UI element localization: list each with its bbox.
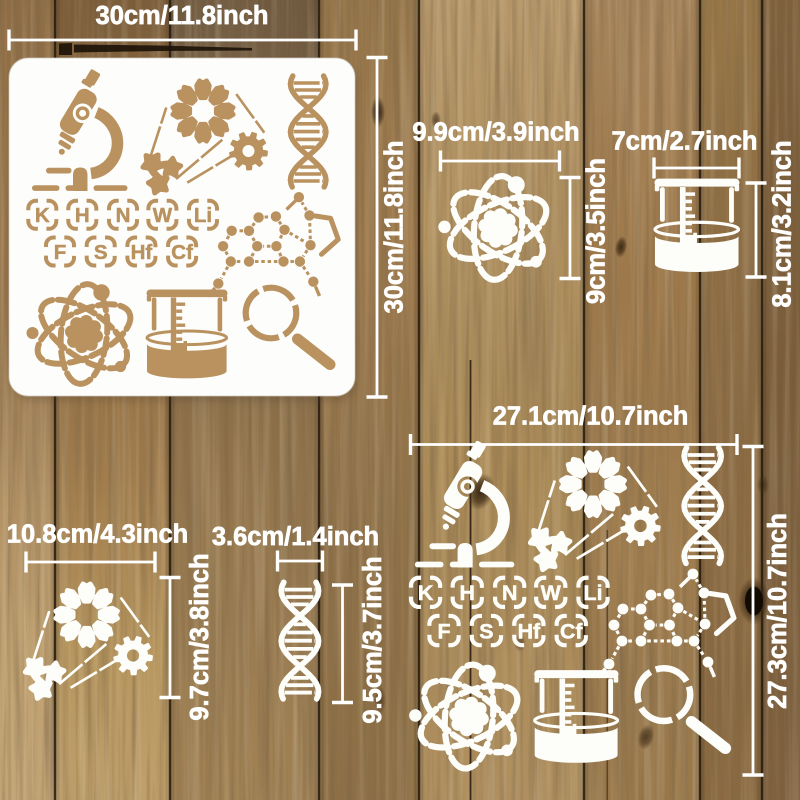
svg-text:27.1cm/10.7inch: 27.1cm/10.7inch: [493, 403, 689, 431]
svg-text:3.6cm/1.4inch: 3.6cm/1.4inch: [212, 523, 379, 551]
svg-text:9.9cm/3.9inch: 9.9cm/3.9inch: [412, 119, 579, 147]
svg-text:9cm/3.5inch: 9cm/3.5inch: [583, 158, 611, 304]
svg-text:8.1cm/3.2inch: 8.1cm/3.2inch: [769, 140, 797, 307]
svg-text:30cm/11.8inch: 30cm/11.8inch: [381, 141, 409, 314]
svg-text:30cm/11.8inch: 30cm/11.8inch: [96, 2, 269, 30]
svg-text:7cm/2.7inch: 7cm/2.7inch: [612, 128, 758, 156]
svg-text:27.3cm/10.7inch: 27.3cm/10.7inch: [764, 513, 792, 709]
svg-text:10.8cm/4.3inch: 10.8cm/4.3inch: [7, 521, 188, 549]
svg-text:9.5cm/3.7inch: 9.5cm/3.7inch: [359, 556, 387, 723]
svg-text:9.7cm/3.8inch: 9.7cm/3.8inch: [186, 553, 214, 720]
